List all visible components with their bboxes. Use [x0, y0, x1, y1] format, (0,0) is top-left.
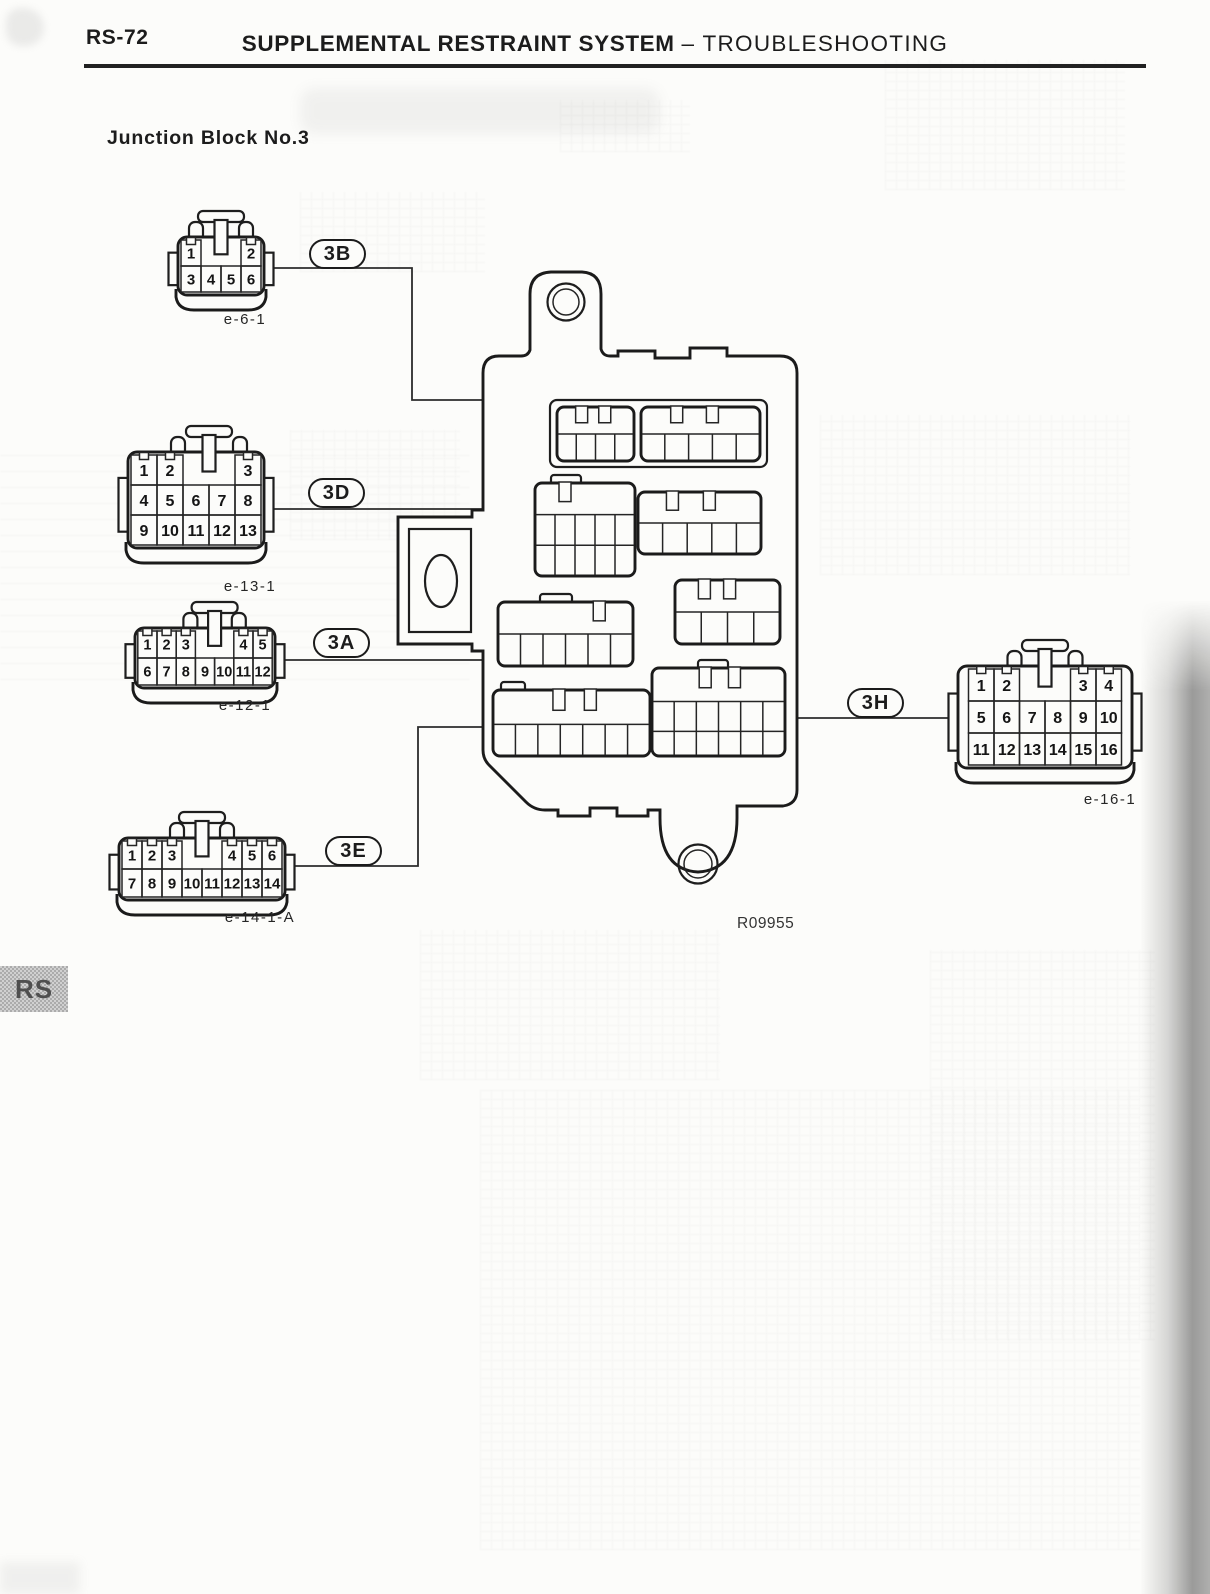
pin-number: 1 — [977, 678, 986, 695]
pin-number: 13 — [239, 523, 257, 540]
terminal-notch — [1079, 667, 1088, 674]
pin-number: 14 — [264, 875, 281, 892]
pin-number: 9 — [168, 875, 176, 892]
pin-number: 11 — [204, 875, 220, 892]
connector-drawing: 12345678910111213 — [112, 422, 280, 570]
pin-number: 2 — [163, 638, 171, 654]
pin-number: 5 — [259, 638, 267, 654]
pin-number: 3 — [168, 847, 176, 864]
callout-3E: 3E — [325, 836, 382, 866]
terminal-notch — [248, 839, 257, 846]
pin-number: 4 — [239, 638, 247, 654]
pin-number: 13 — [1023, 742, 1041, 759]
latch-stem — [215, 220, 228, 254]
pin-number: 10 — [1100, 710, 1118, 727]
callout-3B: 3B — [309, 239, 366, 269]
pin-number: 11 — [236, 665, 251, 681]
pin-number: 9 — [201, 665, 209, 681]
pin-number: 3 — [244, 463, 253, 480]
callout-3A: 3A — [313, 628, 370, 658]
terminal-notch — [268, 839, 277, 846]
terminal-notch — [128, 839, 137, 846]
pin-number: 6 — [143, 665, 151, 681]
pin-number: 4 — [207, 271, 216, 288]
connector-drawing: 1234567891011121314 — [103, 808, 301, 922]
pin-number: 5 — [977, 710, 986, 727]
terminal-notch — [187, 238, 196, 245]
terminal-notch — [977, 667, 986, 674]
pin-number: 10 — [184, 875, 201, 892]
caption-e-12-1: e-12-1 — [219, 697, 271, 714]
caption-e-14-1-A: e-14-1-A — [225, 909, 295, 926]
pin-number: 7 — [128, 875, 136, 892]
pin-number: 5 — [248, 847, 256, 864]
pin-number: 1 — [143, 638, 151, 654]
pin-number: 14 — [1049, 742, 1067, 759]
pin-number: 9 — [1079, 710, 1088, 727]
pin-number: 12 — [998, 742, 1016, 759]
pin-number: 12 — [255, 665, 271, 681]
terminal-notch — [244, 453, 253, 460]
connector-drawing: 123456789101112 — [119, 598, 291, 710]
pin-number: 4 — [1104, 678, 1113, 695]
pin-number: 9 — [140, 523, 149, 540]
pin-number: 4 — [228, 847, 237, 864]
junction-block-figure — [390, 258, 810, 948]
terminal-notch — [166, 453, 175, 460]
latch-stem — [1039, 649, 1052, 687]
pin-number: 6 — [247, 271, 255, 288]
terminal-notch — [239, 629, 248, 636]
pin-number: 13 — [244, 875, 261, 892]
terminal-notch — [168, 839, 177, 846]
terminal-notch — [148, 839, 157, 846]
pin-number: 3 — [1079, 678, 1088, 695]
pin-number: 10 — [216, 665, 232, 681]
pin-number: 8 — [148, 875, 156, 892]
latch-stem — [203, 435, 216, 472]
callout-3D: 3D — [308, 478, 365, 508]
pin-number: 1 — [140, 463, 149, 480]
pin-number: 2 — [166, 463, 175, 480]
caption-e-13-1: e-13-1 — [224, 578, 276, 595]
section-side-tab: RS — [0, 966, 68, 1012]
pin-number: 11 — [973, 742, 990, 759]
pin-number: 5 — [227, 271, 235, 288]
terminal-notch — [247, 238, 256, 245]
manual-page: RS-72 SUPPLEMENTAL RESTRAINT SYSTEM – TR… — [0, 0, 1210, 1594]
terminal-notch — [143, 629, 152, 636]
latch-stem — [196, 821, 209, 856]
figure-code: R09955 — [737, 915, 794, 933]
pin-number: 2 — [148, 847, 156, 864]
terminal-notch — [1104, 667, 1113, 674]
terminal-notch — [181, 629, 190, 636]
callout-3H: 3H — [847, 688, 904, 718]
pin-number: 3 — [182, 638, 190, 654]
pin-number: 11 — [188, 523, 205, 540]
pin-number: 5 — [166, 493, 175, 510]
pin-number: 6 — [192, 493, 201, 510]
pin-number: 12 — [224, 875, 241, 892]
pin-number: 15 — [1074, 742, 1092, 759]
pin-number: 2 — [1002, 678, 1011, 695]
pin-number: 12 — [213, 523, 231, 540]
block-outline — [398, 272, 797, 884]
pin-number: 10 — [161, 523, 179, 540]
pin-number: 4 — [140, 493, 149, 510]
terminal-notch — [140, 453, 149, 460]
pin-number: 3 — [187, 271, 195, 288]
pin-number: 1 — [128, 847, 136, 864]
pin-number: 8 — [182, 665, 190, 681]
caption-e-6-1: e-6-1 — [224, 311, 267, 328]
latch-stem — [208, 611, 221, 646]
connector-drawing: 123456 — [162, 207, 280, 317]
pin-number: 16 — [1100, 742, 1118, 759]
pin-number: 6 — [1002, 710, 1011, 727]
terminal-notch — [1002, 667, 1011, 674]
pin-number: 8 — [1053, 710, 1062, 727]
caption-e-16-1: e-16-1 — [1084, 791, 1136, 808]
pin-number: 7 — [218, 493, 227, 510]
terminal-notch — [258, 629, 267, 636]
pin-number: 2 — [247, 245, 255, 262]
pin-number: 1 — [187, 245, 195, 262]
pin-number: 7 — [1028, 710, 1037, 727]
pin-number: 8 — [244, 493, 253, 510]
terminal-notch — [162, 629, 171, 636]
terminal-notch — [228, 839, 237, 846]
connector-drawing: 12345678910111213141516 — [942, 636, 1148, 790]
pin-number: 7 — [163, 665, 171, 681]
pin-number: 6 — [268, 847, 276, 864]
